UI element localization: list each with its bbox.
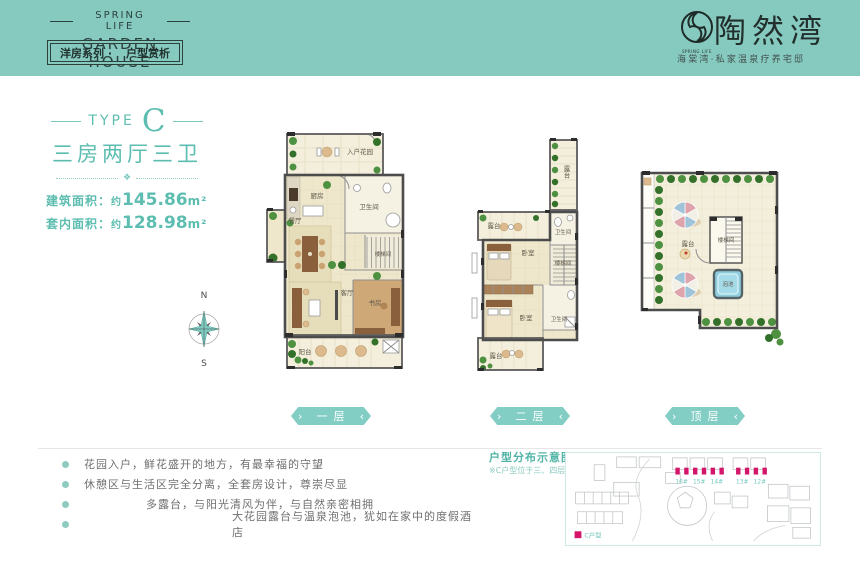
type-prefix: TYPE	[88, 113, 134, 129]
room-label-living: 客厅	[341, 288, 355, 297]
building-label: 13#	[736, 479, 748, 485]
sitemap-note: ※C户型位于三、四层	[489, 465, 565, 476]
tab-series-label: 洋房系列 ·	[60, 45, 112, 61]
floor-ribbon-level2: 二层	[490, 407, 570, 425]
building-label: 14#	[711, 479, 723, 485]
sitemap-box: 16# 15# 14# 13# 12# C户型	[565, 452, 821, 546]
project-name: 陶然湾	[714, 6, 828, 52]
site-roads	[632, 459, 785, 541]
diamond-ornament-icon: ❖	[123, 173, 131, 183]
room-label-bath-lower: 卫生间	[551, 315, 568, 323]
feature-item: 大花园露台与温泉泡池，犹如在家中的度假酒店	[62, 514, 482, 534]
room-label-stairs: 楼梯间	[555, 259, 572, 267]
feature-text: 大花园露台与温泉泡池，犹如在家中的度假酒店	[84, 508, 482, 540]
dotted-rule	[56, 178, 118, 179]
tab-view-label: 户型赏析	[126, 45, 170, 61]
room-label-stairs: 楼梯间	[375, 250, 392, 258]
legend-label: C户型	[584, 531, 602, 540]
room-label-dining: 餐厅	[289, 216, 303, 225]
type-heading: TYPE C	[38, 106, 216, 136]
page: SPRING LIFE GARDEN HOUSE 洋房系列 · 户型赏析 SPR…	[0, 0, 860, 567]
room-label-terrace-left: 露台	[488, 221, 501, 230]
room-label-terrace-bottom: 露台	[490, 351, 503, 360]
area-inner-label: 套内面积：	[46, 217, 111, 231]
rule-left	[51, 121, 81, 122]
area-built-value: 145.86	[122, 190, 188, 210]
area-built-unit: m²	[188, 194, 208, 208]
legend-c-unit: C户型	[575, 531, 603, 540]
room-label-bedroom-lower: 卧室	[520, 313, 534, 322]
room-label-pool: 泡池	[722, 280, 734, 288]
room-label-terrace: 露台	[682, 239, 695, 248]
compass-north-label: N	[201, 291, 208, 301]
room-label-balcony: 阳台	[299, 347, 312, 356]
room-label-bath-upper: 卫生间	[555, 228, 572, 236]
brand-subtitle: SPRING LIFE	[50, 10, 190, 32]
building-label: 16#	[675, 479, 687, 485]
bullet-icon	[62, 461, 69, 468]
dotted-rule	[136, 178, 198, 179]
floor-ribbon-level1: 一层	[291, 407, 371, 425]
type-letter: C	[142, 106, 166, 136]
area-built: 建筑面积：约145.86m²	[38, 190, 216, 210]
room-label-stairs: 楼梯间	[718, 236, 735, 244]
floorplan-level1: 入户花园 厨房 卫生间 餐厅 楼梯间 客厅 书房 阳台	[265, 130, 405, 373]
rule-left	[50, 21, 73, 22]
area-inner-approx: 约	[111, 220, 122, 231]
building-label: 15#	[693, 479, 705, 485]
ribbon-label: 二层	[516, 408, 550, 424]
floor-ribbon-roof: 顶层	[665, 407, 745, 425]
building-label: 12#	[754, 479, 766, 485]
rule-right	[167, 21, 190, 22]
rule-right	[173, 121, 203, 122]
room-label-entry-garden: 入户花园	[347, 147, 373, 156]
room-label-bath: 卫生间	[359, 202, 379, 211]
floorplan-roof: 露台 楼梯间 泡池	[636, 166, 784, 351]
ornament-divider: ❖	[38, 173, 216, 183]
compass: N S	[181, 285, 227, 369]
area-inner: 套内面积：约128.98m²	[38, 213, 216, 233]
area-built-approx: 约	[111, 197, 122, 208]
room-label-terrace-top: 露台	[562, 165, 570, 180]
rooms-summary: 三房两厅三卫	[38, 138, 216, 168]
unit-type-block: TYPE C 三房两厅三卫 ❖ 建筑面积：约145.86m² 套内面积：约128…	[38, 106, 216, 233]
project-logo-icon: SPRING LIFE	[677, 5, 717, 59]
series-tab: 洋房系列 · 户型赏析	[47, 40, 183, 65]
feature-text: 花园入户，鲜花盛开的地方，有最幸福的守望	[84, 456, 324, 472]
area-inner-value: 128.98	[122, 213, 188, 233]
room-label-study: 书房	[369, 298, 382, 307]
bullet-icon	[62, 521, 69, 528]
brand-subtitle-text: SPRING LIFE	[80, 10, 160, 32]
bullet-icon	[62, 501, 69, 508]
sitemap-title: 户型分布示意图	[489, 449, 573, 465]
feature-item: 休憩区与生活区完全分离，全套房设计，尊崇尽显	[62, 474, 482, 494]
c-unit-markers	[675, 468, 767, 475]
feature-list: 花园入户，鲜花盛开的地方，有最幸福的守望 休憩区与生活区完全分离，全套房设计，尊…	[62, 454, 482, 534]
umbrella-icon	[672, 202, 698, 228]
feature-item: 花园入户，鲜花盛开的地方，有最幸福的守望	[62, 454, 482, 474]
umbrella-icon	[672, 272, 698, 298]
feature-text: 休憩区与生活区完全分离，全套房设计，尊崇尽显	[84, 476, 348, 492]
room-label-bedroom-upper: 卧室	[522, 248, 536, 257]
area-built-label: 建筑面积：	[46, 194, 111, 208]
room-label-kitchen: 厨房	[311, 191, 324, 200]
area-inner-unit: m²	[188, 217, 208, 231]
ribbon-label: 顶层	[691, 408, 725, 424]
project-tagline: 海棠湾·私家温泉疗养宅邸	[677, 52, 805, 65]
compass-south-label: S	[201, 359, 207, 369]
section-divider	[38, 448, 822, 449]
bullet-icon	[62, 481, 69, 488]
header-banner: SPRING LIFE GARDEN HOUSE 洋房系列 · 户型赏析 SPR…	[0, 0, 860, 76]
floorplan-level2: 露台 露台 卫生间 卧室 楼梯间 卧室 卫生间 露台	[458, 138, 583, 373]
ribbon-label: 一层	[317, 408, 351, 424]
